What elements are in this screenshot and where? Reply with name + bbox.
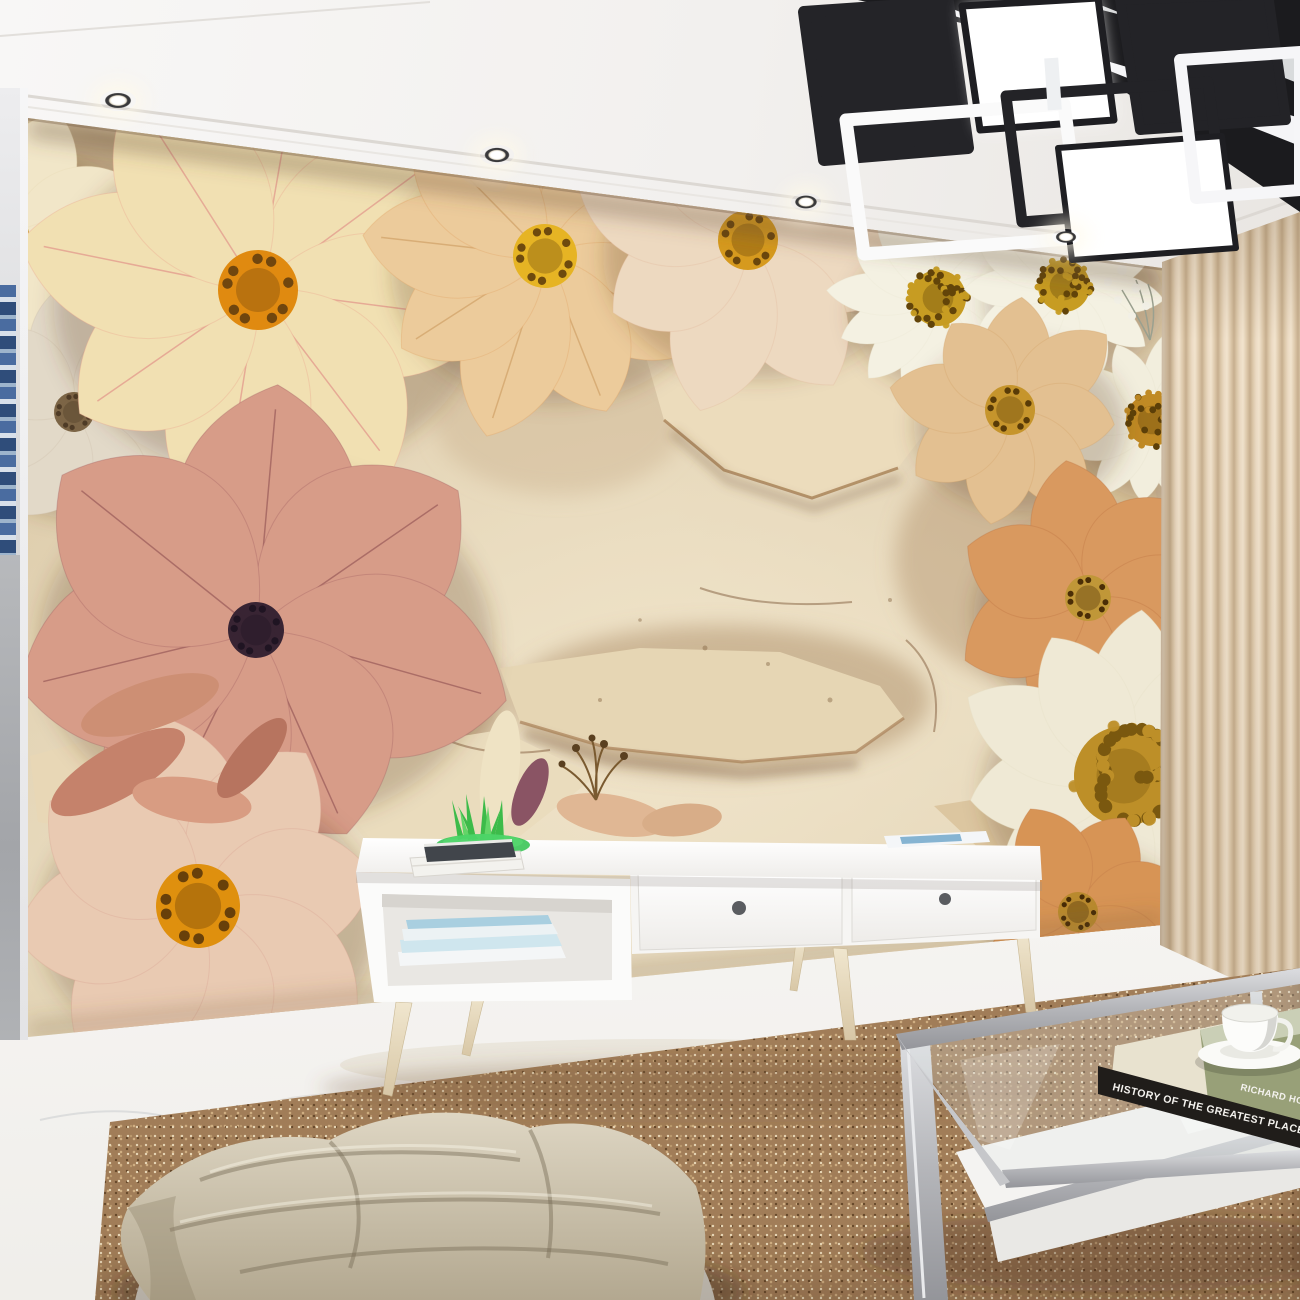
ceiling-spotlight <box>1052 229 1080 245</box>
grey-wall-recess <box>0 555 20 1040</box>
ceiling-spotlight <box>100 90 136 111</box>
ceiling-spotlight <box>480 145 513 164</box>
curtain <box>1160 200 1300 1012</box>
blue-striped-fabric <box>0 285 16 555</box>
left-wall-edge <box>0 88 28 1040</box>
living-room-photo: RICHARD HOCH HISTORY OF THE GREATEST PLA… <box>0 0 1300 1300</box>
ceiling-spotlight <box>791 193 822 211</box>
